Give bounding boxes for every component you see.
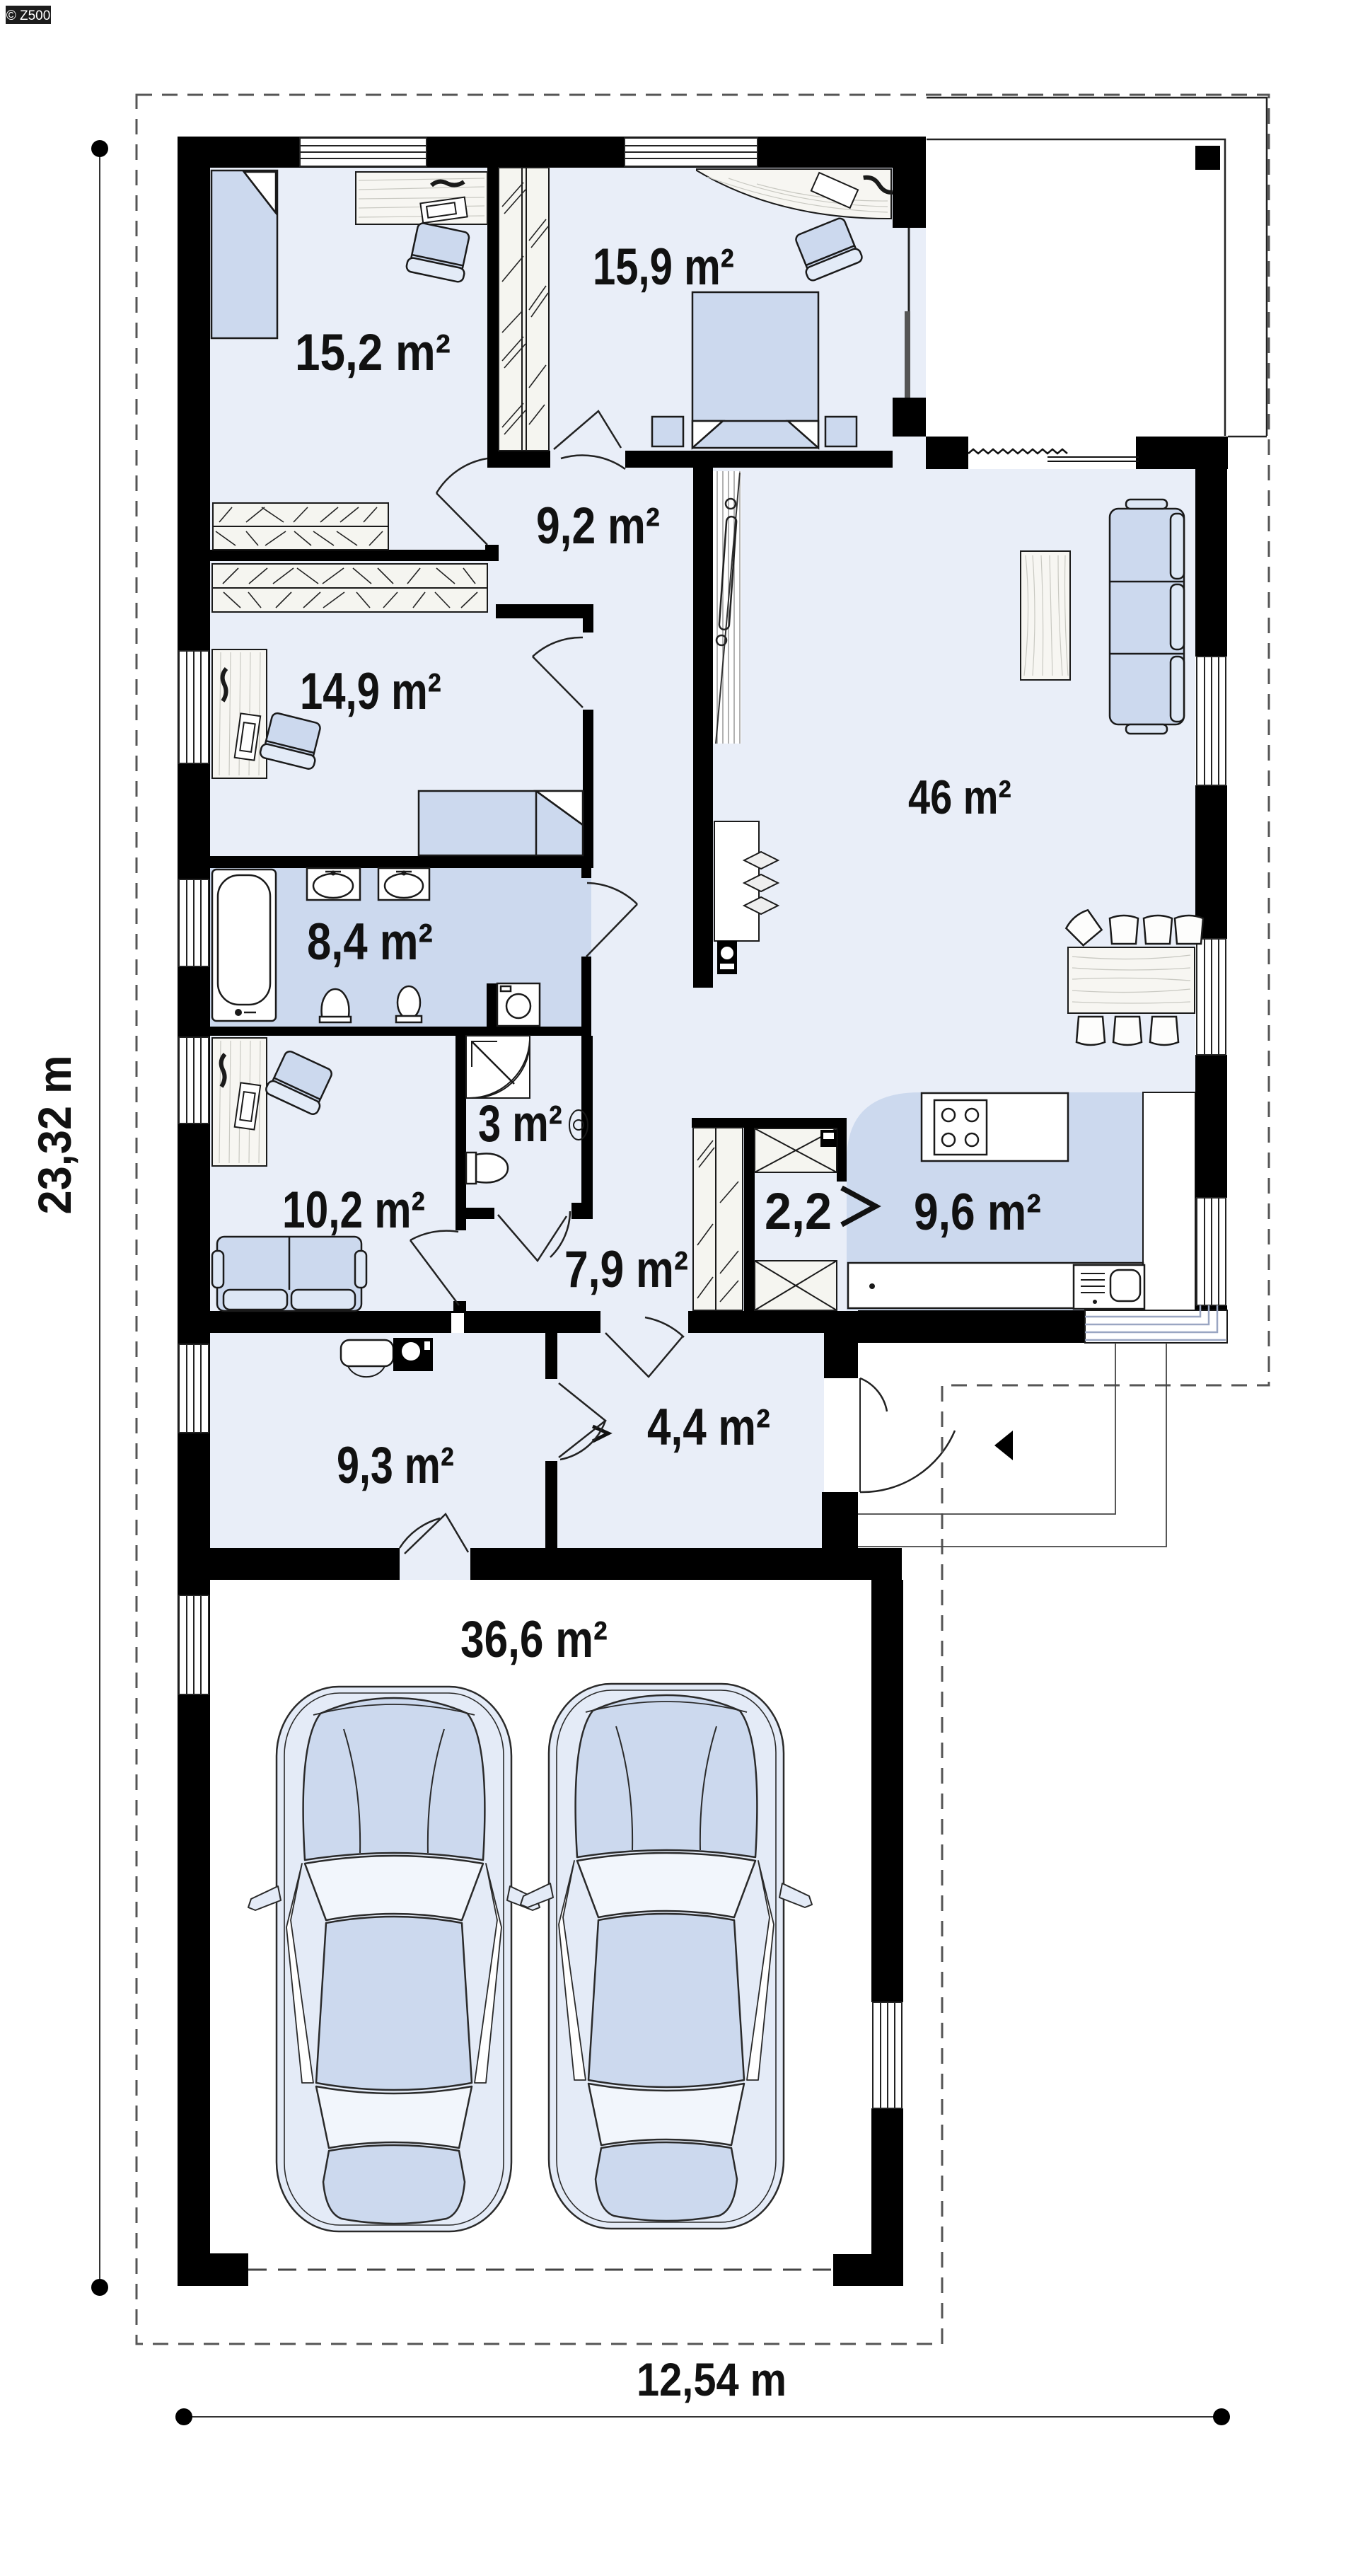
svg-text:8,4 m²: 8,4 m²: [307, 913, 433, 971]
svg-text:9,3 m²: 9,3 m²: [337, 1437, 454, 1494]
svg-text:14,9 m²: 14,9 m²: [300, 663, 441, 720]
svg-text:© Z500: © Z500: [6, 8, 51, 23]
svg-text:23,32 m: 23,32 m: [28, 1056, 81, 1215]
svg-text:15,9 m²: 15,9 m²: [593, 238, 734, 296]
svg-text:12,54 m: 12,54 m: [637, 2353, 787, 2405]
svg-text:15,2 m²: 15,2 m²: [295, 324, 451, 381]
svg-text:2,2: 2,2: [765, 1183, 832, 1240]
svg-text:10,2 m²: 10,2 m²: [282, 1182, 425, 1239]
svg-text:9,6 m²: 9,6 m²: [914, 1184, 1041, 1241]
svg-text:4,4 m²: 4,4 m²: [647, 1399, 770, 1456]
svg-text:3 m²: 3 m²: [478, 1095, 562, 1153]
svg-text:46 m²: 46 m²: [908, 770, 1011, 824]
svg-text:9,2 m²: 9,2 m²: [536, 497, 660, 555]
svg-text:7,9 m²: 7,9 m²: [564, 1241, 688, 1298]
svg-text:36,6 m²: 36,6 m²: [460, 1611, 608, 1668]
